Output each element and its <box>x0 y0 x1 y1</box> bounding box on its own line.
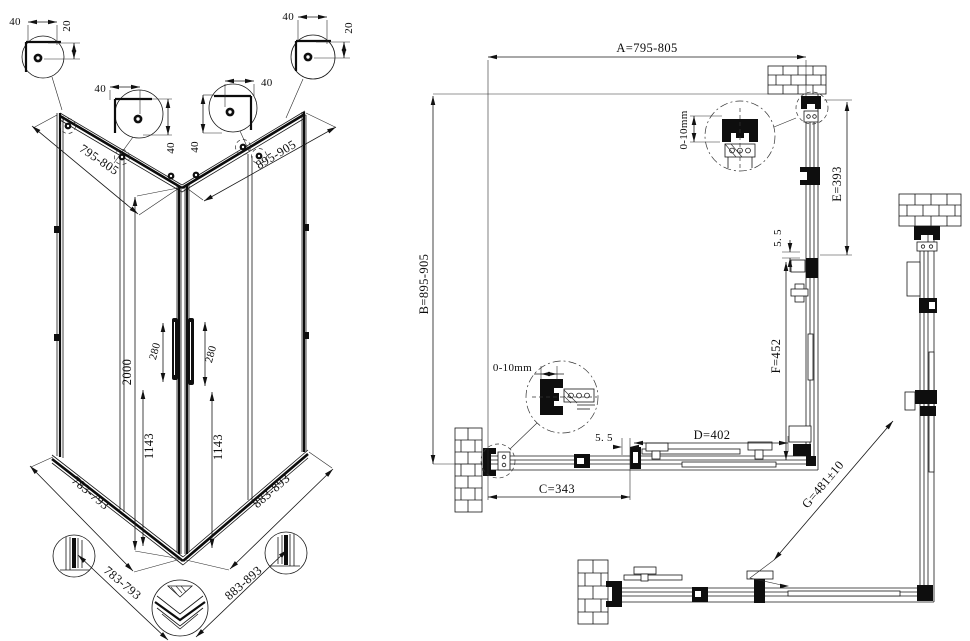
wall-bracket <box>54 334 60 341</box>
iso-bottom-detail-right <box>265 532 307 574</box>
door-glass-plan <box>682 462 776 467</box>
plan-front-panel-parts <box>574 442 776 469</box>
detail2-offset: 40 <box>94 83 106 95</box>
plan-open-rails <box>618 230 934 602</box>
dim-handle-left: 280 <box>147 341 163 361</box>
plan-detail-top-profile: 0-10mm <box>678 101 775 171</box>
detail4-drop: 20 <box>343 22 355 34</box>
iso-bottom-detail-left <box>53 535 95 577</box>
iso-door-handles <box>172 318 194 385</box>
wall-hatch-left <box>455 428 482 512</box>
detail3-offset: 40 <box>261 77 273 89</box>
plan-view: 0-10mm 0-10mm A=795-805 B=895-905 <box>417 41 961 624</box>
plan-detail-side-profile: 0-10mm <box>493 361 598 433</box>
iso-corner-detail-4: 40 20 <box>282 11 355 118</box>
door-handle-plan <box>646 443 668 451</box>
dim-f: F=452 <box>769 339 783 374</box>
wall-bracket <box>54 226 60 233</box>
plan-main-rails <box>433 94 818 470</box>
dim-base-depth: 883-893 <box>222 563 265 603</box>
wall-bracket <box>303 332 309 339</box>
plan-wall-profile-top <box>774 92 828 127</box>
door-handle-plan <box>634 567 656 574</box>
detail4-offset: 40 <box>282 11 294 23</box>
dim-height: 2000 <box>120 359 134 386</box>
dim-c: C=343 <box>539 482 575 496</box>
dim-d: D=402 <box>694 428 731 442</box>
dim-adjust-top: 0-10mm <box>678 110 690 149</box>
dim-b: B=895-905 <box>417 254 431 315</box>
dim-bottom-width: 783-793 <box>69 473 112 512</box>
technical-drawing-page: 795-805 895-905 2000 280 280 1143 1143 <box>0 0 970 641</box>
wall-hatch-far-right <box>899 194 961 226</box>
detail3-drop: 40 <box>189 141 201 153</box>
dim-door-glass-right: 1143 <box>211 434 225 460</box>
detail1-offset: 40 <box>9 16 21 28</box>
wall-hatch-bottom <box>578 560 608 624</box>
glass-edge <box>808 334 813 380</box>
iso-corner-detail-2: 40 40 <box>94 83 177 163</box>
dim-adjust-side: 0-10mm <box>493 362 532 374</box>
plan-open-parts <box>606 226 940 607</box>
detail1-drop: 20 <box>61 20 73 32</box>
iso-corner-detail-1: 40 20 <box>9 16 80 110</box>
wall-bracket <box>303 224 309 231</box>
dim-handle-right: 280 <box>203 344 219 364</box>
iso-bottom-detail-center <box>152 580 208 636</box>
dim-bottom-depth: 883-893 <box>250 471 293 511</box>
dim-e: E=393 <box>830 166 844 201</box>
dim-door-glass-left: 1143 <box>142 433 156 459</box>
detail2-drop: 40 <box>165 142 177 154</box>
wall-hatch-top-right <box>768 66 826 94</box>
plan-side-panel-parts <box>789 167 820 466</box>
shower-enclosure-drawing: 795-805 895-905 2000 280 280 1143 1143 <box>0 0 970 641</box>
dim-gap-top: 5. 5 <box>772 229 784 247</box>
dim-a: A=795-805 <box>616 41 677 55</box>
dim-gap-side: 5. 5 <box>595 432 613 444</box>
plan-dimensions: A=795-805 B=895-905 E=393 5. 5 F=452 D=4… <box>417 41 895 588</box>
iso-view: 795-805 895-905 2000 280 280 1143 1143 <box>9 11 355 641</box>
door-glass-plan <box>788 591 900 596</box>
